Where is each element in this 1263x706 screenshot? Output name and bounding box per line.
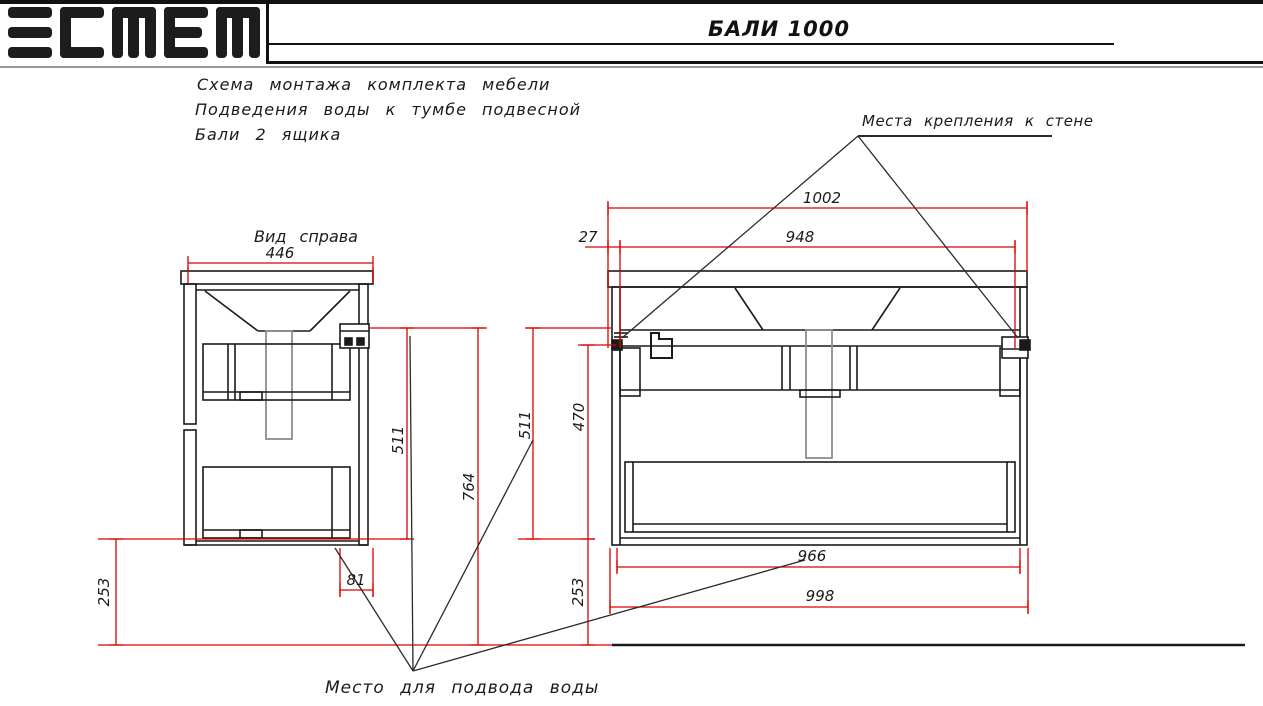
water-supply-callout: Место для подвода воды (325, 679, 599, 698)
dim-side-width: 446 (266, 245, 295, 262)
side-view-label: Вид справа (254, 228, 358, 246)
description-line-1: Схема монтажа комплекта мебели (197, 76, 550, 94)
dim-bottom-clearance-front: 253 (570, 578, 587, 607)
description-line-2: Подведения воды к тумбе подвесной (195, 101, 581, 119)
dim-front-body-width: 998 (806, 588, 835, 605)
dim-bottom-clearance-side: 253 (96, 578, 113, 607)
leader-lines (335, 136, 1052, 671)
description-line-3: Бали 2 ящика (195, 126, 341, 144)
front-view-drawing (608, 271, 1030, 545)
dim-mount-height-floor: 764 (461, 473, 478, 502)
dim-water-offset: 81 (346, 572, 365, 589)
dim-front-mount-height: 511 (517, 411, 534, 440)
dim-mount-edge-offset: 27 (578, 229, 597, 246)
drawing-linework (0, 0, 1263, 706)
drawing-sheet: БАЛИ 1000 (0, 0, 1263, 706)
dim-front-inner-width: 966 (798, 548, 827, 565)
wall-mount-callout: Места крепления к стене (862, 113, 1093, 130)
dim-side-mount-height: 511 (390, 426, 407, 455)
dim-front-inner-height: 470 (571, 403, 588, 432)
dim-front-overall-width: 1002 (803, 190, 841, 207)
dimension-lines (98, 201, 1028, 645)
side-view-drawing (181, 271, 373, 545)
dim-mount-spacing: 948 (786, 229, 815, 246)
